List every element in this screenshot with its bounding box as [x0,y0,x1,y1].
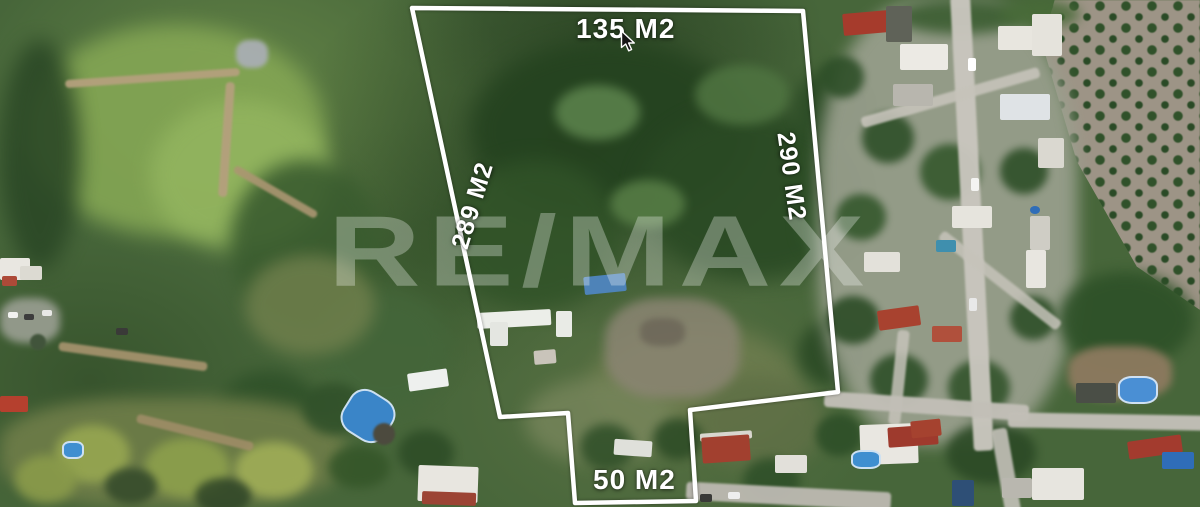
measurement-label-bottom: 50 M2 [593,464,676,496]
aerial-photo: RE/MAX 135 M2 289 M2 290 M2 50 M2 [0,0,1200,507]
mouse-cursor [620,30,637,53]
